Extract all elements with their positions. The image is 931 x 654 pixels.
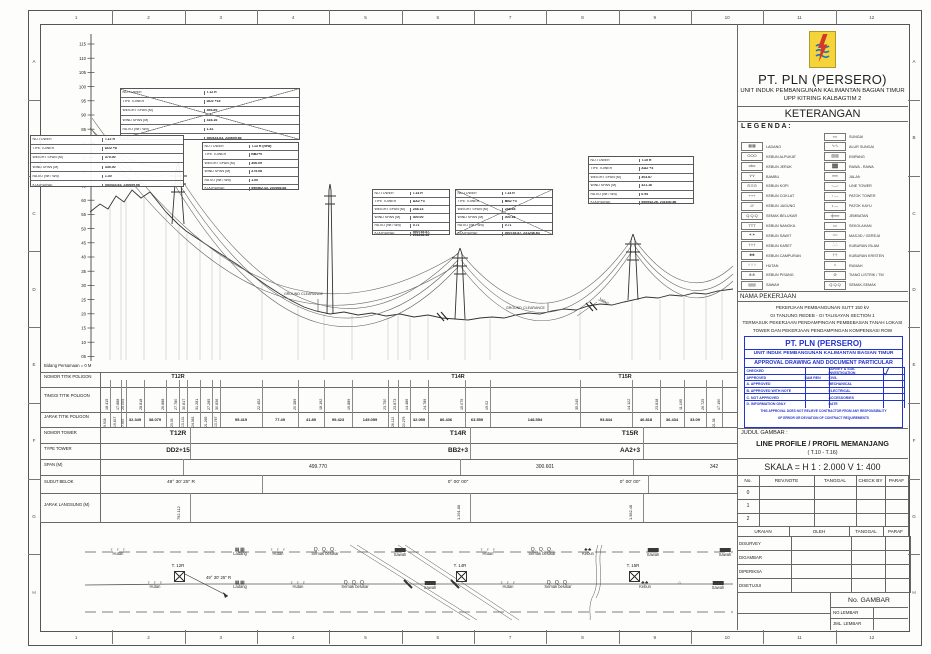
band-tick <box>212 380 213 387</box>
legend-row: †††KEBUN KARET∴∴KUBURAN ISLAM <box>741 241 908 251</box>
band-tick <box>187 380 188 387</box>
band-row-label: SUDUT BELOK <box>44 480 73 485</box>
tinggi-value: 18.192 <box>319 389 323 410</box>
legend-label-left: KEBUN KOPI <box>766 184 821 188</box>
grid-ref-col-bottom: 12 <box>836 630 908 644</box>
tower-table-value: 550745.87, 231246.63 <box>411 231 449 238</box>
band-divider <box>110 387 111 412</box>
band-divider <box>298 387 299 412</box>
grid-ref-col-bottom: 8 <box>546 630 619 644</box>
tower-table-row: WEIGHT SPAN (M)375.00 <box>31 153 183 162</box>
tower-table-value: T.15 R <box>640 159 693 163</box>
grid-ref-col-bottom: 5 <box>329 630 402 644</box>
rev-cell <box>885 486 909 500</box>
band-divider <box>220 387 221 412</box>
band-divider <box>298 412 299 427</box>
jarak-value: 36.434 <box>666 417 678 422</box>
tower-table-row: NO.TOWERT.13 R (new) <box>203 143 298 150</box>
span-value: 342 <box>710 464 718 470</box>
tower-table-value: 1.41 <box>205 128 299 132</box>
legend-label-right: RAWA - RAWA <box>849 165 874 169</box>
tower-table-row: RATIO (Wt / Wd)1.41 <box>121 124 299 133</box>
band-divider <box>200 412 201 427</box>
tower-table: NO.TOWERT.14 RTIPE TOWERAA2 +3WEIGHT SPA… <box>372 189 450 235</box>
tower-table-row: WIND SPAN (M)321.16 <box>589 181 693 189</box>
legend-label-right: SUNGAI <box>849 135 863 139</box>
plan-item-sawah: Sawah <box>719 548 732 558</box>
legend-symbol-right: ▫—▫ <box>824 182 846 191</box>
tower-table-label: TIPE TOWER <box>121 100 205 104</box>
tower-table-row: WIND SPAN (M)416.16 <box>121 115 299 124</box>
legend-row: ⋔⋔KEBUN PISANG⊘TIANG LISTRIK / TM <box>741 270 908 280</box>
grid-ref-col-bottom: 3 <box>185 630 258 644</box>
tower-table-value: 494.89 <box>205 109 299 113</box>
jarak-value: 24.363 <box>191 413 195 427</box>
plan-item-sawah: Sawah <box>647 548 660 558</box>
tower-table-value: T.13 R (new) <box>250 145 298 149</box>
jarak-value: 93.844 <box>600 417 612 422</box>
jarak-value: 148.554 <box>528 417 542 422</box>
band-divider <box>166 387 167 412</box>
tower-table-label: WEIGHT SPAN (M) <box>121 109 205 113</box>
band-divider <box>490 387 491 412</box>
tower-table-label: WEIGHT SPAN (M) <box>203 162 250 166</box>
tower-table-label: WIND SPAN (M) <box>456 216 503 220</box>
grid-ref-col-bottom: 4 <box>257 630 330 644</box>
tinggi-value: 18.415 <box>105 389 109 410</box>
grid-ref-col-top: 7 <box>474 10 547 24</box>
tower-table-row: TIPE TOWERAA2 +3 <box>373 197 449 205</box>
plan-item-label: Semak belukar <box>341 585 368 590</box>
band-line <box>100 372 101 522</box>
legend: ≈≈SUNGAI▦▦LADANG∿∿ALUR SUNGAIOOOKEBUN AL… <box>741 132 908 290</box>
band-line <box>40 427 737 428</box>
band-divider <box>633 459 634 475</box>
rev-cell <box>759 486 815 500</box>
band-divider <box>324 412 325 427</box>
legend-row: ✶✶KEBUN SAWIT⌂⌂MASJID / GEREJA <box>741 231 908 241</box>
legend-symbol-left: /// <box>741 202 763 211</box>
jarak-value: 13.131 <box>181 413 185 427</box>
legend-label-right: LINE TOWER <box>849 184 872 188</box>
jarak-value: 26.112 <box>391 413 395 427</box>
band-tick <box>632 380 633 387</box>
band-divider <box>632 387 633 412</box>
tower-table: NO.TOWERT.13 R (new)TIPE TOWERBB2+0WEIGH… <box>202 142 299 190</box>
tower-table-label: KOORDINAT <box>203 187 250 191</box>
legend-symbol-right: • — <box>824 202 846 211</box>
jml-lembar-label: JML. LEMBAR <box>833 621 861 626</box>
nomor-tower-value: T15R <box>622 430 639 437</box>
band-tick <box>388 380 389 387</box>
band-tick <box>706 380 707 387</box>
grid-ref-row-left: A <box>28 24 40 101</box>
type-tower-value: DD2+15 <box>166 447 190 454</box>
band-divider <box>398 387 399 412</box>
legend-row: ⊙⊙⊙KEBUN KOPI▫—▫LINE TOWER <box>741 181 908 191</box>
uraian-cell: DIPERIKSA <box>737 564 792 579</box>
grid-ref-row-right: F <box>908 403 920 480</box>
grid-ref-row-right: C <box>908 176 920 253</box>
tower-table-label: RATIO (Wt / Wd) <box>456 224 503 228</box>
band-divider <box>722 387 723 412</box>
tinggi-value: 22.452 <box>257 389 261 410</box>
skala-line: SKALA = H 1 : 2.000 V 1: 400 <box>737 458 908 475</box>
band-divider <box>722 412 723 427</box>
tower-table-row: KOORDINAT550562.43, 230936.88 <box>203 184 298 192</box>
band-divider <box>190 427 191 443</box>
sudut-belok-value: 49° 30' 25" R <box>167 480 195 485</box>
band-divider <box>580 412 581 427</box>
band-tick <box>465 380 466 387</box>
jarak-value: 9.908 <box>103 413 107 427</box>
tinggi-value: 24.789 <box>423 389 427 410</box>
tinggi-value: 25.005 <box>121 389 125 410</box>
plan-item-semak: Q. Q. Q.Semak belukar <box>311 548 338 557</box>
tower-table-value: 550745.87, 231246.63 <box>503 232 552 236</box>
grid-ref-col-top: 8 <box>546 10 619 24</box>
tower-table-row: WEIGHT SPAN (M)248.48 <box>456 205 552 213</box>
band-divider <box>684 387 685 412</box>
poligon-tower-label: T12R <box>171 374 184 380</box>
plan-item-label: Ladang <box>233 552 247 557</box>
tower-table-value: 550943.26, 231630.86 <box>640 201 693 205</box>
grid-ref-row-left: D <box>28 251 40 328</box>
legend-symbol-left: ♀♀♀ <box>741 261 763 270</box>
drawing-sheet: 1151101051009590858075706560555045403530… <box>0 0 931 654</box>
band-row-label: SPAN (M) <box>44 463 62 468</box>
tower-table-row: KOORDINAT550745.87, 231246.63 <box>373 230 449 238</box>
rev-cell <box>759 499 815 513</box>
band-divider <box>410 387 411 412</box>
legend-row: ⋎⋎BAMBU══JALAN <box>741 172 908 182</box>
grid-ref-row-left: E <box>28 327 40 404</box>
tower-table-value: 400.16 <box>503 216 552 220</box>
keterangan-title: KETERANGAN <box>737 106 908 121</box>
no-lembar-label: NO.LEMBAR <box>833 610 858 615</box>
tower-table-label: KOORDINAT <box>31 184 103 188</box>
plan-item-label: Sawah <box>712 586 725 591</box>
tower-table-value: BB2 +3 <box>503 200 552 204</box>
tower-table-label: TIPE TOWER <box>203 153 250 157</box>
tower-table-label: WIND SPAN (M) <box>121 119 205 123</box>
legend-row: ♀♀♀HUTAN⌂RUMAH <box>741 261 908 271</box>
grid-ref-col-top: 2 <box>112 10 185 24</box>
jarak-value: 19.817 <box>113 413 117 427</box>
band-row-label: TINGGI TITIK POLIGON <box>44 394 90 399</box>
jarak-value: 86.436 <box>440 417 452 422</box>
legend-label-right: SEMAK-SEMAK <box>849 283 876 287</box>
company-unit: UNIT INDUK PEMBANGUNAN KALIMANTAN BAGIAN… <box>737 87 908 95</box>
tinggi-value: 17.888 <box>116 389 120 410</box>
grid-ref-col-bottom: 11 <box>763 630 836 644</box>
jarak-value: 32.349 <box>129 417 141 422</box>
tinggi-value: 14.486 <box>405 389 409 410</box>
tinggi-value: 23.750 <box>383 389 387 410</box>
grid-ref-col-bottom: 6 <box>402 630 475 644</box>
stamp-unit: UNIT INDUK PEMBANGUNAN KALIMANTAN BAGIAN… <box>745 349 902 358</box>
legend-row: ▤▤SAWAHQ.Q.QSEMAK-SEMAK <box>741 280 908 290</box>
band-divider <box>632 412 633 427</box>
uraian-cell <box>883 536 911 551</box>
band-divider <box>166 412 167 427</box>
band-row-label: TYPE TOWER <box>44 447 71 452</box>
band-tick <box>110 380 111 387</box>
tinggi-value: 35.245 <box>575 389 579 410</box>
jarak-value: 38.079 <box>149 417 161 422</box>
tower-table-row: WEIGHT SPAN (M)494.89 <box>121 106 299 115</box>
legend-symbol-right: ∿∿ <box>824 142 846 151</box>
band-divider <box>580 387 581 412</box>
plan-item-label: Kebun <box>639 585 651 590</box>
uraian-cell <box>849 578 886 593</box>
grid-ref-col-bottom: 9 <box>619 630 692 644</box>
band-line <box>40 493 737 494</box>
band-tick <box>410 380 411 387</box>
plan-tower-label: T. 15R <box>627 563 640 568</box>
legend-symbol-right: ▓▓ <box>824 162 846 171</box>
tower-table-row: WEIGHT SPAN (M)303.67 <box>589 173 693 181</box>
tower-table-value: 416.16 <box>205 119 299 123</box>
tower-table-row: RATIO (Wt / Wd)0.71 <box>456 222 552 230</box>
tower-table-label: KOORDINAT <box>589 201 640 205</box>
tinggi-value: 17.190 <box>717 389 721 410</box>
tower-table: NO.TOWERT.12 RTIPE TOWERDD2 +8WEIGHT SPA… <box>30 135 184 187</box>
tower-table-row: NO.TOWERT.12 R <box>121 89 299 97</box>
legend-label-right: JEMBATAN <box>849 214 868 218</box>
band-divider <box>470 427 471 443</box>
tower-table-value: 1.30 <box>103 175 183 179</box>
band-row-label: JARAK TITIK POLIGON <box>44 415 89 420</box>
legend-label-left: KEBUN CAMPURAN <box>766 254 821 258</box>
plan-item-label: Semak belukar <box>528 552 555 557</box>
band-line <box>40 443 737 444</box>
plan-item-ladang: ▦▦Ladang <box>233 548 247 557</box>
grid-ref-row-left: F <box>28 403 40 480</box>
plan-item-sawah: Sawah <box>712 581 725 591</box>
tower-table-value: 248.13 <box>411 208 449 212</box>
tower-table-label: WEIGHT SPAN (M) <box>31 156 103 160</box>
band-divider <box>410 412 411 427</box>
band-tick <box>200 380 201 387</box>
legend-symbol-left: OOO <box>741 152 763 161</box>
poligon-tower-label: T15R <box>618 374 631 380</box>
grid-ref-col-top: 3 <box>185 10 258 24</box>
stamp-footer-2: OF ERROR OR DEVIATION OF CONTRACT REQUIR… <box>745 414 902 422</box>
tower-table-row: RATIO (Wt / Wd)0.94 <box>589 190 693 198</box>
band-divider <box>660 387 661 412</box>
nomor-tower-value: T14R <box>450 430 467 437</box>
band-divider <box>470 493 471 522</box>
company-subunit: UPP KITRING KALBAGTIM 2 <box>737 95 908 103</box>
band-divider <box>398 412 399 427</box>
legend-symbol-left: ⊙⊙⊙ <box>741 182 763 191</box>
legend-label-left: KEBUN KARET <box>766 244 821 248</box>
legend-symbol-right: ▨▨ <box>824 152 846 161</box>
band-divider <box>643 443 644 459</box>
tower-table-label: NO.TOWER <box>203 145 250 149</box>
tower-table-row: NO.TOWERT.14 R <box>456 190 552 197</box>
plan-item-sawah: Sawah <box>394 548 407 558</box>
legend-label-right: RUMAH <box>849 264 863 268</box>
tinggi-value: 27.285 <box>207 389 211 410</box>
uraian-cell <box>789 564 852 579</box>
legend-symbol-right: ⌂⌂ <box>824 231 846 240</box>
tower-table-row: RATIO (Wt / Wd)1.30 <box>31 171 183 180</box>
legend-label-left: KEBUN PISANG <box>766 273 821 277</box>
jarak-value: 46.818 <box>640 417 652 422</box>
band-tick <box>398 380 399 387</box>
band-tick <box>144 380 145 387</box>
tinggi-value: 15.075 <box>460 389 464 410</box>
grid-ref-col-top: 5 <box>329 10 402 24</box>
tinggi-value: 23.818 <box>655 389 659 410</box>
legend-row: +++KEBUN COKLAT▫ —PATOK TOWER <box>741 191 908 201</box>
tower-table-label: NO.TOWER <box>121 91 205 95</box>
tower-table-label: WEIGHT SPAN (M) <box>373 208 411 212</box>
tower-table-label: WEIGHT SPAN (M) <box>589 176 640 180</box>
tower-table-label: KOORDINAT <box>456 232 503 236</box>
tower-table-value: BB2+0 <box>250 153 298 157</box>
band-tick <box>490 380 491 387</box>
plan-item-hutan: ♀ ♀ ♀Hutan <box>480 548 497 557</box>
legend-symbol-left: ♣♣ <box>741 251 763 260</box>
plan-item-sawah: Sawah <box>424 581 437 591</box>
rev-cell <box>885 499 909 513</box>
grid-ref-col-top: 6 <box>402 10 475 24</box>
tower-table-row: NO.TOWERT.15 R <box>589 157 693 164</box>
legend-label-right: PATOK TOWER <box>849 194 876 198</box>
uraian-cell <box>883 550 911 565</box>
plan-item-ladang: ▦▦Ladang <box>233 581 247 590</box>
plan-item-kebun: ♣♣Kebun <box>639 581 651 590</box>
legend-label-right: EMPANG <box>849 155 865 159</box>
grid-ref-row-right: A <box>908 24 920 101</box>
grid-ref-col-top: 11 <box>763 10 836 24</box>
tinggi-value: 19.02 <box>485 389 489 410</box>
band-tick <box>179 380 180 387</box>
legend-row: ▦▦LADANG∿∿ALUR SUNGAI <box>741 142 908 152</box>
legend-symbol-right: ══ <box>824 172 846 181</box>
tower-table-label: NO.TOWER <box>373 192 411 196</box>
tower-table-row: WIND SPAN (M)300.00 <box>373 213 449 221</box>
tower-table-value: T.12 R <box>103 138 183 142</box>
jarak-value: 145.059 <box>363 417 377 422</box>
judul-gambar-label: JUDUL GAMBAR : <box>741 430 788 436</box>
band-divider <box>643 427 644 443</box>
band-line <box>40 522 737 523</box>
tower-table-row: TIPE TOWERBB2 +3 <box>456 197 552 205</box>
band-tick <box>298 380 299 387</box>
plan-item-hutan: ♀ ♀ ♀Hutan <box>270 548 287 557</box>
legend-label-right: KUBURAN KRISTEN <box>849 254 884 258</box>
tower-table-row: WEIGHT SPAN (M)306.09 <box>203 159 298 167</box>
type-tower-value: AA2+3 <box>620 447 640 454</box>
tower-table-value: DD2 +8 <box>103 147 183 151</box>
jarak-langsung-value: 1.291.88 <box>456 495 461 520</box>
plan-item-label: Sawah <box>647 553 660 558</box>
jarak-value: 95.419 <box>235 417 247 422</box>
tower-table-label: WIND SPAN (M) <box>373 216 411 220</box>
tower-table-value: T.14 R <box>503 192 552 196</box>
legend-label-left: KEBUN ALPUKAT <box>766 155 821 159</box>
jarak-langsung-value: 792.112 <box>176 495 181 520</box>
plan-tower-label: T. 12R <box>172 563 185 568</box>
band-divider <box>179 387 180 412</box>
no-gambar-label: No. GAMBAR <box>830 593 908 607</box>
band-tick <box>324 380 325 387</box>
tower-table: NO.TOWERT.14 RTIPE TOWERBB2 +3WEIGHT SPA… <box>455 189 553 235</box>
legend-label-left: KEBUN SAWIT <box>766 234 821 238</box>
plan-angle-label: 49° 30' 25" R <box>206 575 231 580</box>
uraian-cell <box>849 550 886 565</box>
band-divider <box>643 493 644 522</box>
band-tick <box>722 380 723 387</box>
tower-table-label: TIPE TOWER <box>456 200 503 204</box>
legend-symbol-left: TTT <box>741 222 763 231</box>
legenda-title: L E G E N D A : <box>741 123 791 130</box>
tower-table-label: RATIO (Wt / Wd) <box>121 128 205 132</box>
rev-cell <box>856 486 886 500</box>
sudut-belok-value: 0° 00' 00" <box>448 480 469 485</box>
uraian-cell: DIGAMBAR <box>737 550 792 565</box>
rev-cell: 0 <box>737 486 760 500</box>
tower-table-label: TIPE TOWER <box>373 200 411 204</box>
band-tick <box>262 380 263 387</box>
band-divider <box>648 475 649 493</box>
tower-table-value: 550434.63, 230659.66 <box>205 137 299 141</box>
plan-tower-marker <box>456 571 467 582</box>
band-divider <box>465 412 466 427</box>
grid-ref-col-top: 9 <box>619 10 692 24</box>
tower-table: NO.TOWERT.15 RTIPE TOWERAA2 +3WEIGHT SPA… <box>588 156 694 204</box>
jarak-value: 63.559 <box>471 417 483 422</box>
band-divider <box>352 412 353 427</box>
stamp-company: PT. PLN (PERSERO) <box>745 337 902 349</box>
tower-table-value: 300.00 <box>411 216 449 220</box>
band-divider <box>262 387 263 412</box>
band-divider <box>706 387 707 412</box>
tower-table-label: NO.TOWER <box>589 159 640 163</box>
legend-row: OOOKEBUN ALPUKAT▨▨EMPANG <box>741 152 908 162</box>
plan-item-label: Sawah <box>424 586 437 591</box>
legend-row: oboKEBUN JERUK▓▓RAWA - RAWA <box>741 162 908 172</box>
rev-cell: 1 <box>737 499 760 513</box>
plan-item-label: Semak belukar <box>311 552 338 557</box>
tower-table-label: WIND SPAN (M) <box>31 166 103 170</box>
tower-table-row: WIND SPAN (M)335.00 <box>31 162 183 171</box>
uraian-cell: DISURVEY <box>737 536 792 551</box>
tinggi-value: 14.122 <box>627 389 631 410</box>
uraian-cell <box>789 550 852 565</box>
tower-table-value: T.14 R <box>411 192 449 196</box>
band-divider <box>262 412 263 427</box>
tower-table-label: WEIGHT SPAN (M) <box>456 208 503 212</box>
jarak-value: 7.957 <box>121 413 125 427</box>
band-divider <box>187 387 188 412</box>
tower-table-label: KOORDINAT <box>373 232 411 236</box>
band-divider <box>352 387 353 412</box>
grid-ref-col-bottom: 7 <box>474 630 547 644</box>
tinggi-value: 26.725 <box>701 389 705 410</box>
nomor-tower-value: T12R <box>170 430 187 437</box>
uraian-cell <box>883 578 911 593</box>
band-tick <box>684 380 685 387</box>
grid-ref-col-bottom: 10 <box>691 630 764 644</box>
job-description: PEKERJAAN PEMBANGUNAN SUTT 150 kVGI TANJ… <box>737 304 908 334</box>
legend-symbol-right: ∴∴ <box>824 241 846 250</box>
band-divider <box>110 412 111 427</box>
